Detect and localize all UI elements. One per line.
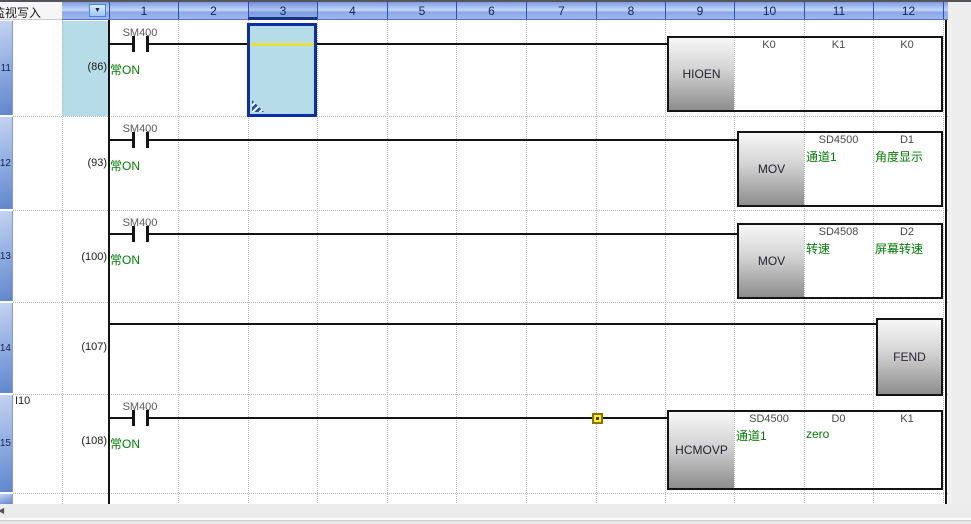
operand-comment: zero xyxy=(806,427,829,441)
contact-device-label: SM400 xyxy=(118,123,162,135)
rung-bar-segment-3[interactable]: 13 xyxy=(0,211,13,301)
rung-bar-segment-1[interactable]: 11 xyxy=(0,21,13,115)
wire-segment xyxy=(149,233,737,235)
wire-segment xyxy=(109,417,132,419)
column-header-border xyxy=(62,19,948,20)
contact-device-label: SM400 xyxy=(118,217,162,229)
rung-number-label: 15 xyxy=(0,438,11,449)
operand-value: D0 xyxy=(804,413,873,425)
scroll-left-button[interactable]: ◀ xyxy=(0,504,10,518)
column-header-10: 10 xyxy=(734,2,804,19)
operand-value: D2 xyxy=(873,226,941,238)
monitor-marker-icon xyxy=(592,413,603,424)
step-number: (108) xyxy=(58,435,107,447)
gridline-h xyxy=(13,210,948,211)
column-header-5: 5 xyxy=(387,2,456,19)
wire-segment xyxy=(109,233,132,235)
instruction-box-mov-2[interactable]: MOV SD4508 转速 D2 屏幕转速 xyxy=(737,223,943,299)
column-header-4: 4 xyxy=(317,2,387,19)
mode-label-cell: 监视写入 xyxy=(0,2,62,20)
window-bottom-edge xyxy=(0,520,971,524)
gridline-v xyxy=(943,20,944,503)
instruction-block: MOV xyxy=(739,225,804,297)
instruction-block: HCMOVP xyxy=(669,412,734,488)
rung-number-label: 12 xyxy=(0,158,11,169)
selected-column-underline xyxy=(248,17,317,20)
right-margin-panel xyxy=(948,2,971,504)
gridline-h xyxy=(13,394,948,395)
operand-value: SD4500 xyxy=(804,134,873,146)
contact-comment: 常ON xyxy=(110,61,140,78)
ladder-editor-window: 监视写入 ▼ 1 2 3 4 5 6 7 8 9 10 11 12 11 12 … xyxy=(0,0,971,524)
operand-comment: 通道1 xyxy=(736,427,767,444)
right-margin-gridline xyxy=(950,20,951,504)
wire-segment xyxy=(149,417,667,419)
instruction-mnemonic: FEND xyxy=(893,350,926,364)
contact-comment: 常ON xyxy=(110,157,140,174)
gridline-v xyxy=(665,20,666,503)
instruction-box-mov-1[interactable]: MOV SD4500 通道1 D1 角度显示 xyxy=(737,131,943,207)
wire-segment xyxy=(149,43,248,45)
operand-comment: 通道1 xyxy=(806,148,837,165)
gridline-h xyxy=(13,116,948,117)
column-header-end-border xyxy=(943,2,944,19)
operand-value: D1 xyxy=(873,134,941,146)
gridline-v xyxy=(596,20,597,503)
horizontal-scrollbar[interactable]: ◀ xyxy=(0,504,971,518)
column-header-2: 2 xyxy=(178,2,248,19)
wire-segment xyxy=(109,43,132,45)
instruction-box-hioen[interactable]: HIOEN K0 K1 K0 xyxy=(667,36,943,112)
operand-value: K1 xyxy=(804,39,873,51)
operand-value: K1 xyxy=(873,413,941,425)
gridline-v xyxy=(526,20,527,503)
instruction-block: HIOEN xyxy=(669,38,734,110)
column-header-9: 9 xyxy=(665,2,734,19)
rung-bar-segment-6[interactable] xyxy=(0,494,13,504)
contact-device-label: SM400 xyxy=(118,401,162,413)
gridline-v xyxy=(317,20,318,503)
gridline-v xyxy=(387,20,388,503)
wire-segment xyxy=(109,139,132,141)
column-header-11: 11 xyxy=(804,2,873,19)
cell-cursor-wire xyxy=(250,43,314,46)
column-header-1: 1 xyxy=(109,2,178,19)
operand-comment: 屏幕转速 xyxy=(875,240,923,257)
step-number: (100) xyxy=(58,251,107,263)
wire-segment xyxy=(109,323,876,325)
column-header-7: 7 xyxy=(526,2,596,19)
wire-segment xyxy=(149,139,737,141)
scroll-left-icon: ◀ xyxy=(0,507,4,515)
instruction-mnemonic: HCMOVP xyxy=(675,443,728,457)
interrupt-pointer-label: I10 xyxy=(15,395,30,407)
instruction-mnemonic: HIOEN xyxy=(682,67,720,81)
operand-value: K0 xyxy=(734,39,804,51)
wire-segment xyxy=(317,43,667,45)
rung-bar-segment-4[interactable]: 14 xyxy=(0,303,13,393)
instruction-mnemonic: MOV xyxy=(758,162,785,176)
rung-bar-segment-5[interactable]: 15 xyxy=(0,395,13,492)
gridline-v xyxy=(178,20,179,503)
right-power-rail xyxy=(945,20,947,504)
rung-number-label: 11 xyxy=(1,63,11,74)
step-number: (107) xyxy=(58,341,107,353)
operand-comment: 转速 xyxy=(806,240,830,257)
rung-bar-segment-2[interactable]: 12 xyxy=(0,117,13,209)
gridline-h xyxy=(13,493,948,494)
column-header-12: 12 xyxy=(873,2,943,19)
mode-label: 监视写入 xyxy=(0,4,41,20)
column-header-6: 6 xyxy=(456,2,526,19)
gridline-v xyxy=(456,20,457,503)
instruction-block: MOV xyxy=(739,133,804,205)
column-header-8: 8 xyxy=(596,2,665,19)
instruction-box-hcmovp[interactable]: HCMOVP SD4500 通道1 D0 zero K1 xyxy=(667,410,943,490)
contact-comment: 常ON xyxy=(110,435,140,452)
rung-number-label: 13 xyxy=(0,251,11,262)
step-number: (93) xyxy=(58,157,107,169)
contact-comment: 常ON xyxy=(110,251,140,268)
gridline-h xyxy=(13,302,948,303)
step-number: (86) xyxy=(58,61,107,73)
filter-dropdown-button[interactable]: ▼ xyxy=(89,4,106,17)
operand-value: SD4500 xyxy=(734,413,804,425)
dropdown-arrow-icon: ▼ xyxy=(94,7,101,14)
cell-cursor[interactable] xyxy=(247,23,317,117)
operand-value: SD4508 xyxy=(804,226,873,238)
instruction-box-fend[interactable]: FEND xyxy=(876,318,943,396)
contact-device-label: SM400 xyxy=(118,27,162,39)
operand-comment: 角度显示 xyxy=(875,148,923,165)
instruction-mnemonic: MOV xyxy=(758,254,785,268)
operand-value: K0 xyxy=(873,39,941,51)
edit-flag-icon xyxy=(252,100,264,112)
rung-number-label: 14 xyxy=(0,343,11,354)
